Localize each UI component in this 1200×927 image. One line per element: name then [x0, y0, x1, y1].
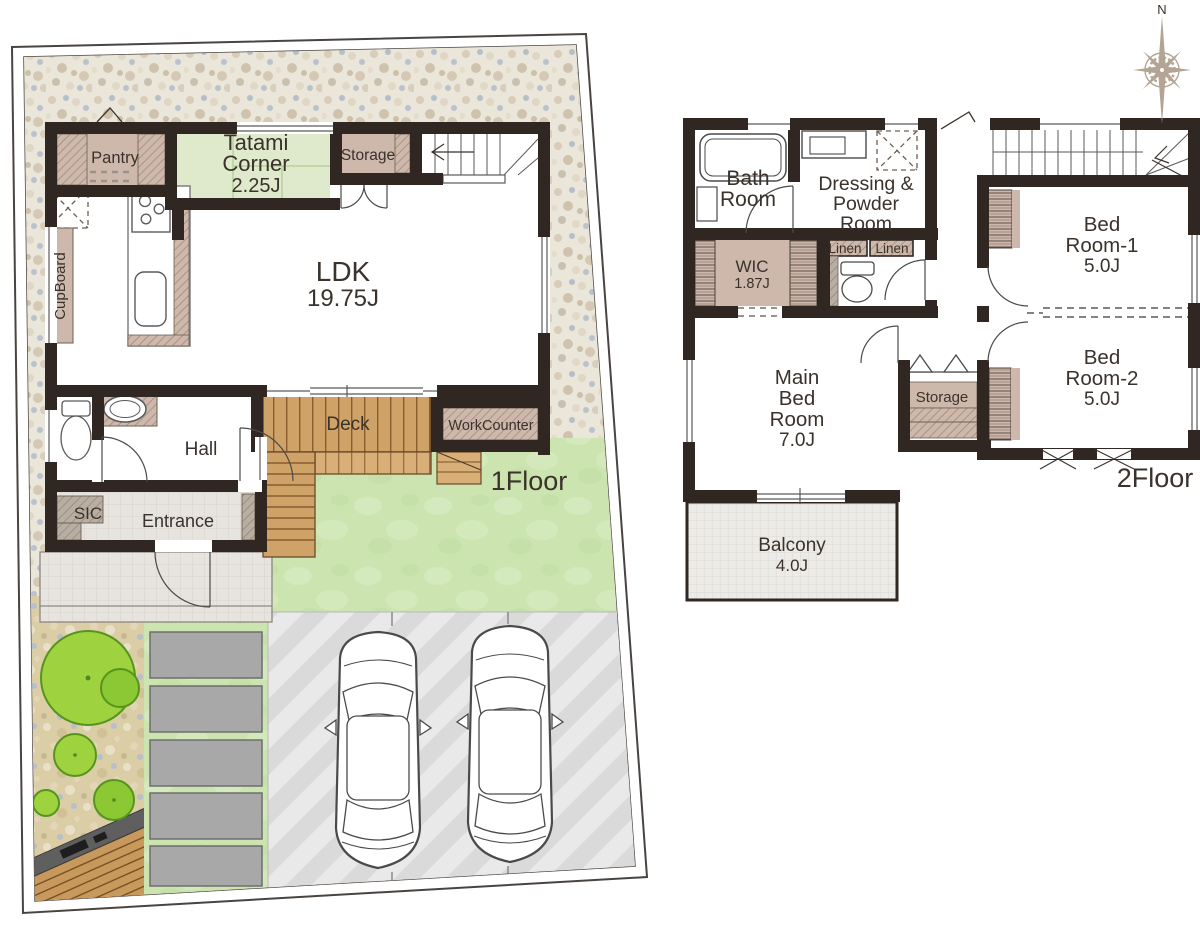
label-tatami-size: 2.25J — [232, 175, 281, 197]
label-linen-a: Linen — [828, 241, 861, 256]
label-pantry: Pantry — [91, 149, 139, 167]
label-dressing-1: Dressing & — [818, 173, 913, 195]
toilet-1f — [61, 401, 91, 460]
wash-basin-1f — [98, 393, 157, 426]
driveway — [268, 612, 648, 908]
stepping-slabs — [150, 632, 262, 886]
side-steps — [437, 452, 481, 484]
floor-plan-page: Pantry Tatami Corner 2.25J Storage LDK 1… — [0, 0, 1200, 927]
label-wic: WIC — [735, 257, 768, 276]
label-dressing-2: Powder — [833, 193, 900, 215]
label-main-1: Main — [775, 366, 819, 389]
bedroom2-closet — [989, 368, 1020, 440]
label-balcony: Balcony — [758, 535, 826, 556]
label-dressing-3: Room — [840, 213, 892, 235]
label-main-size: 7.0J — [779, 430, 815, 451]
compass: N — [1133, 2, 1191, 124]
label-wic-size: 1.87J — [734, 276, 769, 292]
label-ldk: LDK — [316, 256, 371, 287]
label-storage-1f: Storage — [341, 147, 395, 164]
label-tatami-2: Corner — [222, 151, 289, 176]
label-bed1-size: 5.0J — [1084, 256, 1120, 277]
label-cupboard: CupBoard — [52, 252, 69, 320]
label-2floor: 2Floor — [1117, 463, 1194, 493]
label-bed2-1: Bed — [1084, 346, 1120, 369]
deck-steps-left — [263, 452, 315, 557]
label-deck: Deck — [326, 414, 370, 435]
label-main-3: Room — [770, 408, 825, 431]
bedroom1-closet — [985, 190, 1020, 248]
toilet-2f — [827, 256, 874, 306]
label-sic: SIC — [74, 504, 102, 523]
label-ldk-size: 19.75J — [307, 285, 379, 312]
label-bed1-2: Room-1 — [1066, 234, 1139, 257]
floor2-plan: Bath Room Dressing & Powder Room WIC 1.8… — [683, 112, 1200, 600]
label-bath-1: Bath — [726, 167, 769, 190]
label-balcony-size: 4.0J — [776, 556, 808, 575]
label-entrance: Entrance — [142, 511, 214, 531]
label-storage-2f: Storage — [916, 389, 969, 406]
label-work-counter: WorkCounter — [448, 418, 533, 434]
label-hall: Hall — [185, 439, 218, 460]
floor-plan-drawing: Pantry Tatami Corner 2.25J Storage LDK 1… — [0, 0, 1200, 927]
car-left — [325, 632, 431, 868]
label-main-2: Bed — [779, 387, 815, 410]
label-bed2-size: 5.0J — [1084, 389, 1120, 410]
compass-north-label: N — [1157, 2, 1166, 17]
label-1floor: 1Floor — [491, 466, 568, 496]
label-bath-2: Room — [720, 188, 776, 211]
car-right — [457, 626, 563, 862]
label-bed1-1: Bed — [1084, 213, 1120, 236]
sink — [135, 272, 166, 326]
label-linen-b: Linen — [875, 241, 908, 256]
label-bed2-2: Room-2 — [1066, 367, 1139, 390]
